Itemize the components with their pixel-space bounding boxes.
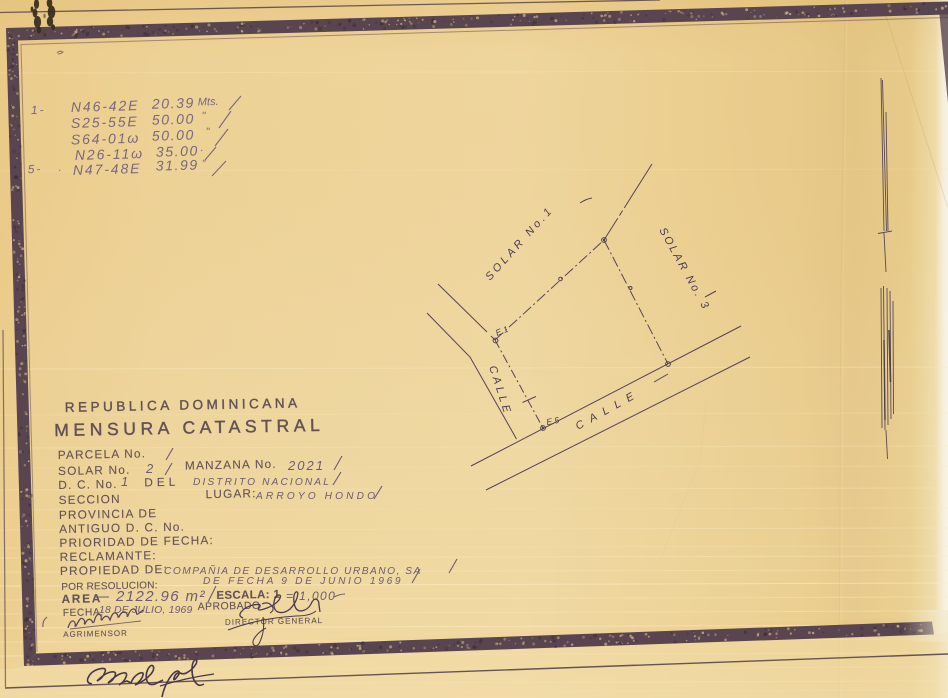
- svg-text:PARCELA No.: PARCELA No.: [58, 446, 147, 462]
- svg-text:·: ·: [200, 144, 204, 156]
- svg-text:FECHA:: FECHA:: [63, 607, 104, 619]
- svg-text:DE FECHA 9 DE JUNIO 1969: DE FECHA 9 DE JUNIO 1969: [203, 576, 403, 587]
- svg-text:1-: 1-: [31, 103, 46, 117]
- svg-text:PROPIEDAD DE:: PROPIEDAD DE:: [60, 562, 168, 578]
- svg-text:N47-48E: N47-48E: [73, 160, 142, 178]
- svg-text:DIRECTOR GENERAL: DIRECTOR GENERAL: [225, 616, 323, 627]
- svg-text:31.99: 31.99: [156, 156, 199, 173]
- svg-text:— 2122.96 m²: — 2122.96 m²: [93, 588, 206, 605]
- svg-text:5-: 5-: [28, 162, 43, 176]
- svg-text:ARROYO HONDO: ARROYO HONDO: [255, 491, 378, 502]
- svg-text:Mts.: Mts.: [198, 96, 219, 109]
- svg-text:SECCION: SECCION: [58, 492, 120, 507]
- svg-text:PRIORIDAD DE FECHA:: PRIORIDAD DE FECHA:: [59, 533, 214, 550]
- svg-text:50.00: 50.00: [152, 127, 195, 144]
- svg-text:AGRIMENSOR: AGRIMENSOR: [63, 629, 128, 639]
- svg-text:LUGAR:: LUGAR:: [205, 486, 256, 501]
- svg-text:20.39: 20.39: [151, 95, 195, 112]
- svg-text:2021: 2021: [287, 458, 325, 473]
- svg-text:SOLAR No.: SOLAR No.: [58, 463, 131, 478]
- svg-text:2: 2: [145, 461, 155, 476]
- svg-text:S25-55E: S25-55E: [71, 113, 139, 131]
- svg-text:DEL: DEL: [144, 475, 179, 490]
- svg-text:MANZANA No.: MANZANA No.: [185, 457, 277, 473]
- svg-text:·: ·: [58, 164, 64, 176]
- svg-text:50.00: 50.00: [152, 111, 195, 128]
- svg-text:N46-42E: N46-42E: [71, 97, 140, 115]
- svg-text:D. C. No.: D. C. No.: [58, 477, 118, 492]
- svg-text:APROBADO: APROBADO: [198, 601, 261, 613]
- svg-text:1: 1: [121, 474, 130, 489]
- svg-text:DISTRITO NACIONAL: DISTRITO NACIONAL: [193, 477, 331, 488]
